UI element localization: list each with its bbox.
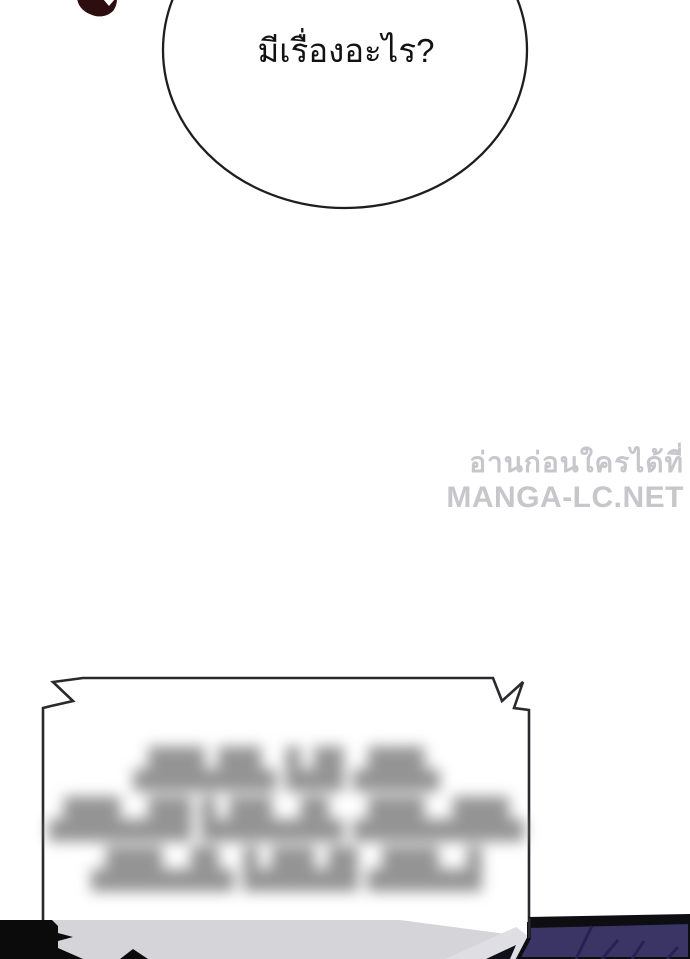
watermark-site-name: MANGA-LC.NET [384,481,684,515]
comic-page: มีเรื่องอะไร? อ่านก่อนใครได้ที่ MANGA-LC… [0,0,690,959]
bottom-scene-band [0,914,690,959]
speech-bubble-text: มีเรื่องอะไร? [165,28,527,74]
site-watermark: อ่านก่อนใครได้ที่ MANGA-LC.NET [384,445,684,515]
blurred-line: ▟█▙▟█ ▙█▙▟▙ ▟█▙▟█▙ [43,794,529,844]
narration-blurred-text: ▟█▙█▙ ▙█ ▟█▙ ▟█▙▟█ ▙█▙▟▙ ▟█▙▟█▙ ▟█▙▟▙ ▙█… [43,744,529,894]
watermark-thai-line: อ่านก่อนใครได้ที่ [384,445,684,481]
blurred-line: ▟█▙▟▙ ▙█▙█ ▟█▙▟ [43,844,529,894]
blurred-line: ▟█▙█▙ ▙█ ▟█▙ [43,744,529,794]
